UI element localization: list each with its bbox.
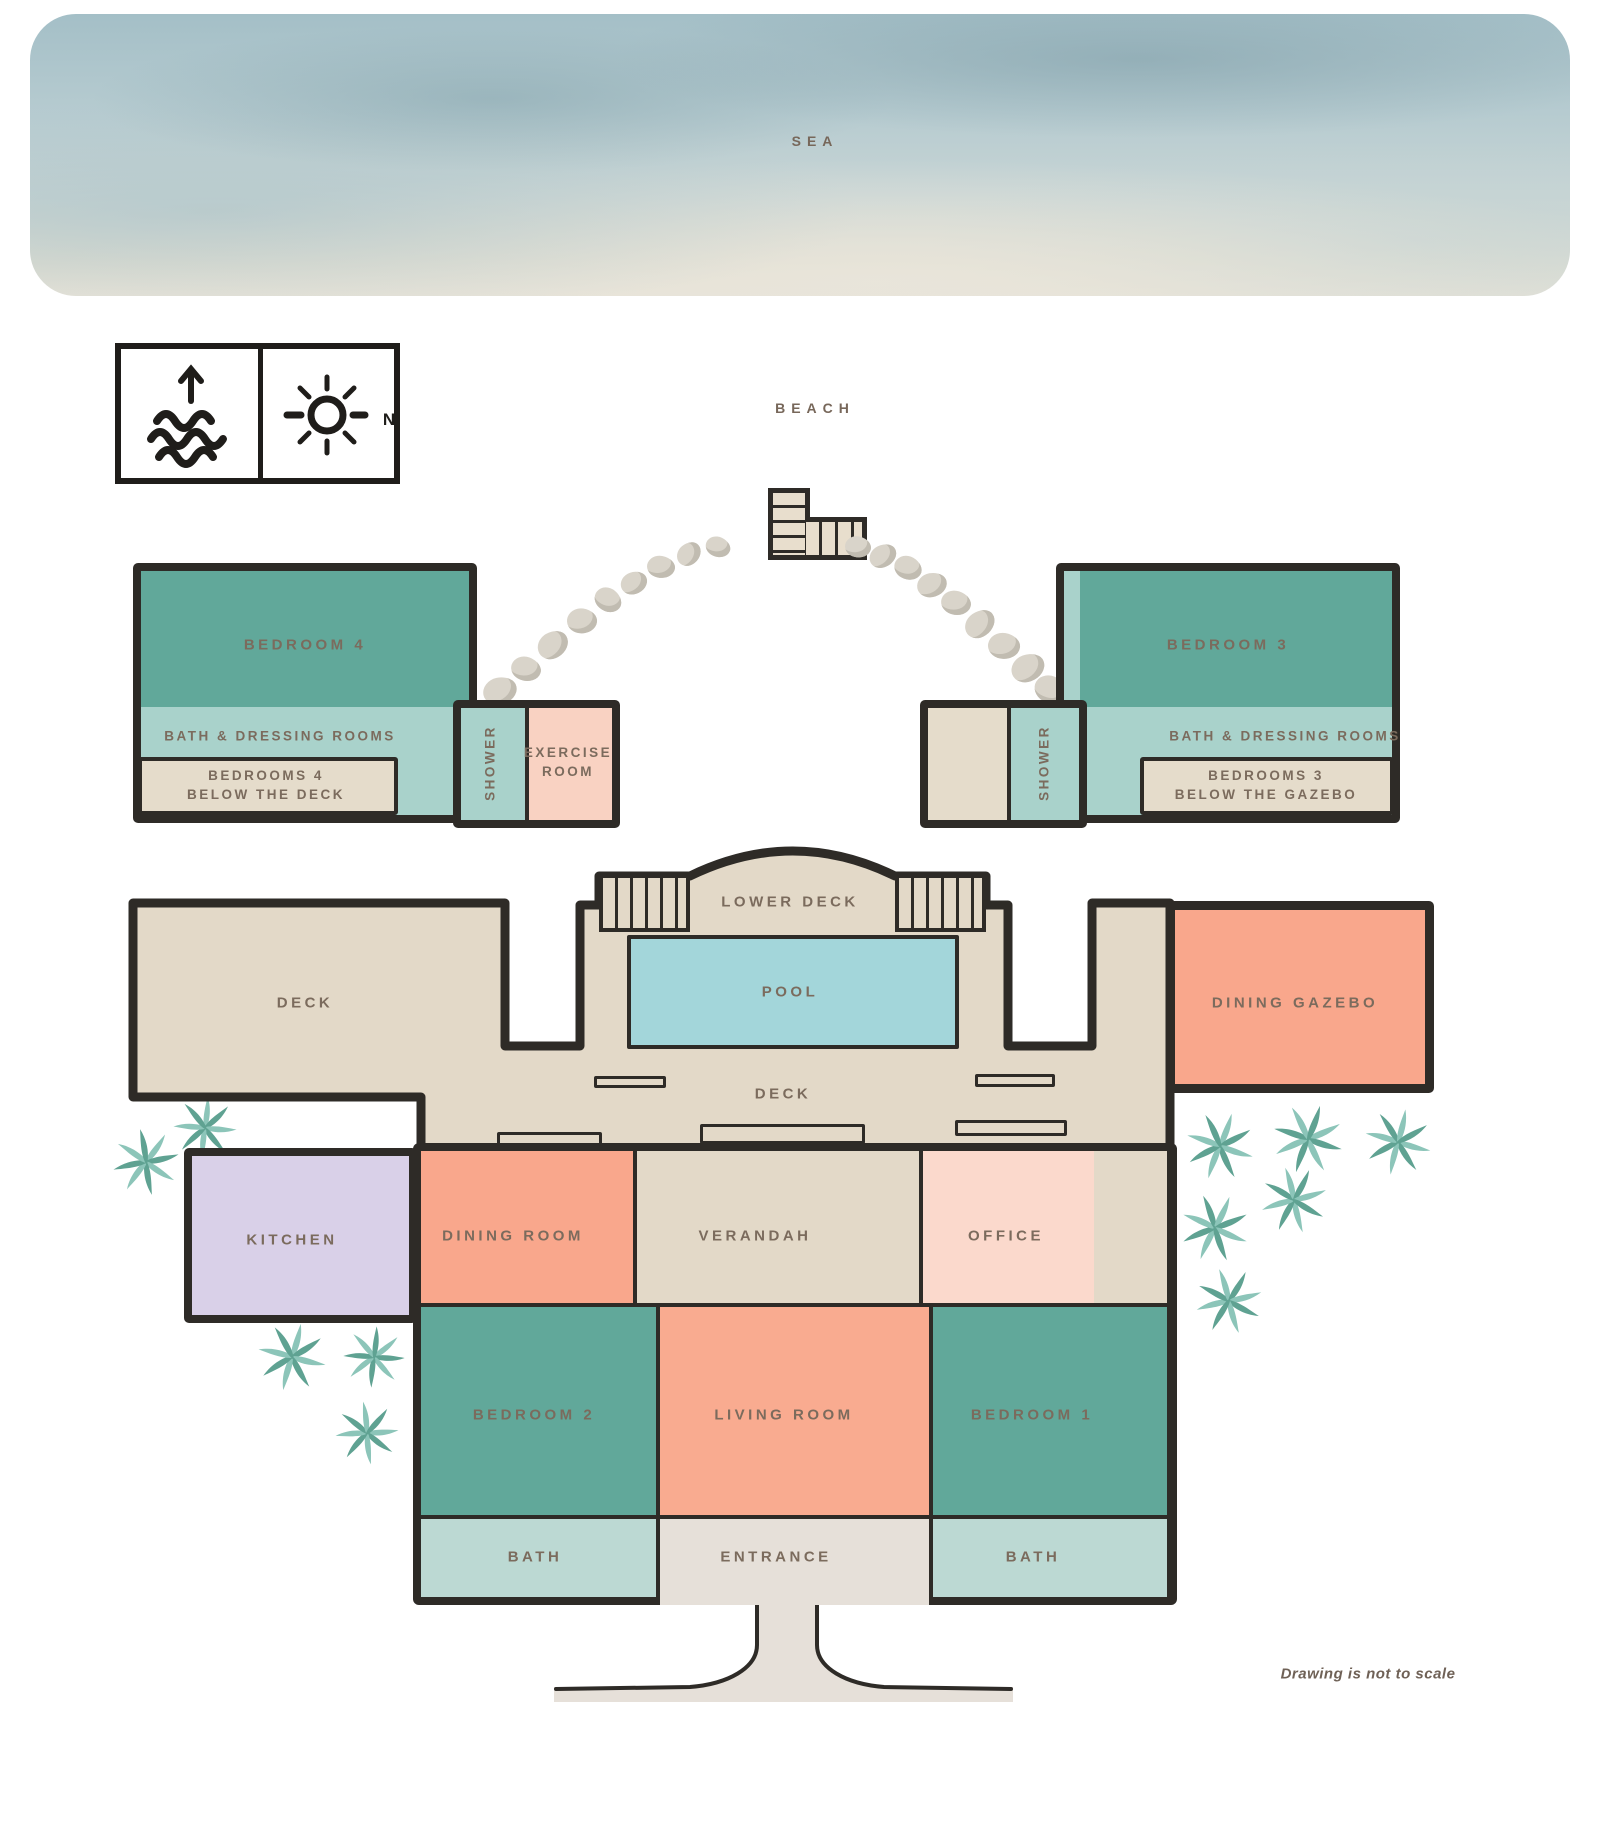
lower-deck-stairs-left (599, 874, 690, 932)
deck-bench (975, 1074, 1055, 1087)
shower-right-label: SHOWER (1036, 725, 1055, 801)
lower-deck-label: LOWER DECK (721, 894, 859, 911)
dining-room-label: DINING ROOM (442, 1228, 584, 1245)
wall-divider (1007, 708, 1011, 820)
verandah-label: VERANDAH (698, 1228, 811, 1245)
living-room-label: LIVING ROOM (714, 1407, 853, 1424)
deck-middle-label: DECK (755, 1086, 812, 1103)
bath-dressing-right-label: BATH & DRESSING ROOMS (1169, 728, 1401, 747)
main-house (413, 1143, 1177, 1605)
scale-note: Drawing is not to scale (1281, 1666, 1456, 1683)
entrance-label: ENTRANCE (720, 1549, 831, 1566)
bedroom-4-label: BEDROOM 4 (244, 637, 366, 654)
bath-left-label: BATH (508, 1549, 563, 1566)
hall-area (1094, 1151, 1167, 1303)
bath-right-label: BATH (1006, 1549, 1061, 1566)
shower-annex-right (920, 700, 1087, 828)
bedroom-2-label: BEDROOM 2 (473, 1407, 595, 1424)
deck-bench (594, 1076, 666, 1088)
deck-left-label: DECK (277, 995, 334, 1012)
shower-left-label: SHOWER (482, 725, 501, 801)
deck-bench (955, 1120, 1067, 1136)
dining-gazebo-label: DINING GAZEBO (1212, 995, 1378, 1012)
deck-bench (700, 1124, 865, 1144)
kitchen-label: KITCHEN (246, 1232, 337, 1249)
bedrooms4-below-deck-label: BEDROOMS 4 BELOW THE DECK (187, 767, 345, 805)
walkway-curb-left (556, 1600, 757, 1689)
bath-dressing-left-label: BATH & DRESSING ROOMS (164, 728, 396, 747)
bedroom-1-label: BEDROOM 1 (971, 1407, 1093, 1424)
storage-area (928, 708, 1007, 820)
bedrooms3-below-gazebo-label: BEDROOMS 3 BELOW THE GAZEBO (1175, 767, 1358, 805)
lower-deck-stairs-right (895, 874, 986, 932)
office-label: OFFICE (968, 1228, 1044, 1245)
villa-floor-plan: SEA BEACH (0, 0, 1600, 1832)
walkway-curb-right (817, 1600, 1011, 1689)
bedroom-3-label: BEDROOM 3 (1167, 637, 1289, 654)
pool-label: POOL (762, 984, 819, 1001)
exercise-room-label: EXERCISE ROOM (524, 744, 612, 782)
